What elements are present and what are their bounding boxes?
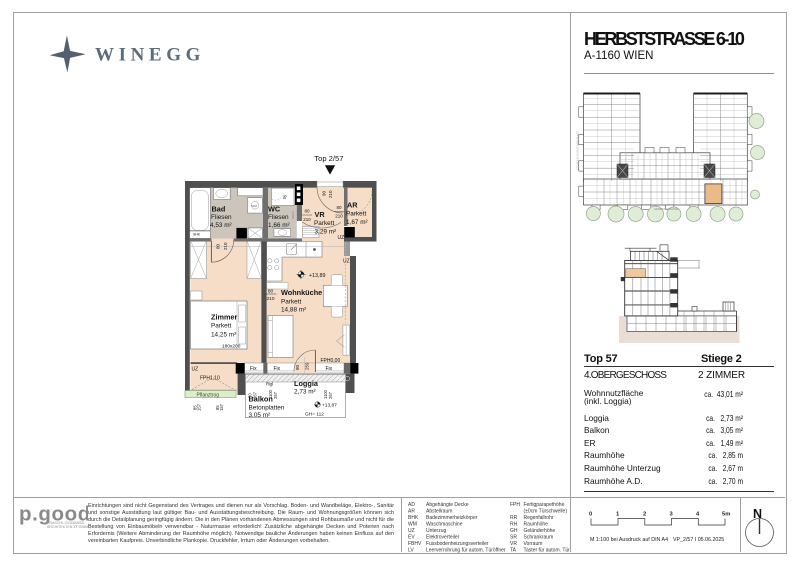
svg-text:Zimmer: Zimmer [211, 313, 238, 322]
svg-text:Wohnküche: Wohnküche [281, 288, 322, 297]
svg-text:Parkett: Parkett [211, 323, 231, 330]
svg-text:Parkett: Parkett [314, 220, 334, 227]
svg-text:WC: WC [268, 205, 281, 214]
svg-text:Fix: Fix [274, 366, 281, 372]
svg-text:Vorraum: Vorraum [524, 541, 543, 547]
svg-text:Betonplatten: Betonplatten [249, 405, 285, 412]
svg-text:80: 80 [216, 243, 221, 249]
svg-text:UZ: UZ [192, 367, 199, 373]
svg-text:SR: SR [510, 535, 517, 541]
svg-text:RR: RR [337, 376, 344, 381]
svg-text:80: 80 [304, 209, 310, 214]
svg-text:UZ: UZ [408, 528, 415, 534]
svg-text:FPH: FPH [510, 502, 520, 508]
svg-text:VP_2/57 I 05.06.2025: VP_2/57 I 05.06.2025 [673, 537, 724, 543]
svg-text:HERBSTSTRASSE: HERBSTSTRASSE [654, 207, 679, 211]
svg-text:3,29 m²: 3,29 m² [315, 229, 337, 236]
svg-text:Regenfallrohr: Regenfallrohr [524, 515, 554, 521]
svg-text:1: 1 [616, 512, 620, 518]
svg-text:Abstellraum: Abstellraum [426, 509, 452, 515]
svg-text:SHK: SHK [193, 233, 201, 237]
svg-text:LV: LV [408, 548, 414, 554]
svg-text:Pflanztrog: Pflanztrog [197, 392, 220, 398]
svg-text:267: 267 [328, 391, 333, 399]
svg-text:157: 157 [197, 403, 202, 411]
svg-text:5m: 5m [722, 512, 730, 518]
svg-text:210: 210 [335, 214, 343, 219]
svg-text:1,66 m²: 1,66 m² [268, 222, 290, 229]
svg-text:259: 259 [305, 362, 310, 370]
svg-text:Fix: Fix [326, 366, 333, 372]
svg-text:Top 2/57: Top 2/57 [314, 154, 343, 163]
svg-text:AR: AR [408, 509, 415, 515]
svg-text:Fertigparapethöhe: Fertigparapethöhe [524, 502, 565, 508]
svg-text:210: 210 [223, 242, 228, 250]
svg-text:2,73 m²: 2,73 m² [294, 389, 316, 396]
svg-text:267: 267 [253, 391, 258, 399]
svg-text:Loggia: Loggia [294, 379, 319, 388]
svg-text:2: 2 [643, 512, 646, 518]
svg-text:RH: RH [510, 522, 518, 528]
svg-text:AD: AD [408, 502, 415, 508]
svg-text:GH: GH [510, 528, 518, 534]
svg-text:43x2,5: 43x2,5 [291, 211, 295, 219]
svg-text:157: 157 [219, 403, 224, 411]
svg-text:TA: TA [510, 548, 517, 554]
svg-text:0: 0 [589, 512, 592, 518]
svg-text:Parkett: Parkett [346, 211, 366, 218]
svg-text:Elektroverteiler: Elektroverteiler [426, 535, 460, 541]
svg-text:Abgehängte Decke: Abgehängte Decke [426, 502, 469, 508]
svg-text:210: 210 [266, 296, 274, 302]
svg-text:Fliesen: Fliesen [211, 214, 232, 221]
svg-text:4: 4 [696, 512, 700, 518]
svg-text:AR: AR [347, 201, 358, 210]
svg-text:LEOPOLD-KUNSCHAK-PLATZ: LEOPOLD-KUNSCHAK-PLATZ [576, 131, 580, 170]
svg-text:Taster für autom. Türöffner: Taster für autom. Türöffner [524, 548, 571, 554]
svg-text:Bad: Bad [212, 205, 226, 214]
svg-text:90: 90 [322, 190, 327, 196]
svg-text:+13,89: +13,89 [309, 273, 326, 279]
svg-text:267: 267 [273, 391, 278, 399]
svg-text:80: 80 [336, 205, 342, 210]
svg-text:14,88 m²: 14,88 m² [281, 307, 306, 314]
svg-text:FPH1,10: FPH1,10 [200, 376, 220, 382]
svg-text:Waschmaschine: Waschmaschine [426, 522, 463, 528]
svg-text:BHK: BHK [408, 515, 419, 521]
svg-text:+13,87: +13,87 [322, 403, 337, 409]
svg-text:14,25 m²: 14,25 m² [211, 332, 236, 339]
svg-text:180x200: 180x200 [222, 344, 241, 350]
svg-text:210: 210 [328, 190, 333, 198]
svg-text:1,67 m²: 1,67 m² [346, 219, 368, 226]
svg-text:Parkett: Parkett [281, 299, 301, 306]
svg-text:WM: WM [408, 522, 417, 528]
svg-text:Fix: Fix [250, 366, 257, 372]
svg-text:WM: WM [252, 204, 258, 208]
svg-text:Fussbodenheizungsverteiler: Fussbodenheizungsverteiler [426, 541, 489, 547]
svg-text:Geländerhöhe: Geländerhöhe [524, 528, 556, 534]
svg-text:80: 80 [295, 364, 300, 370]
svg-text:UZ: UZ [338, 235, 345, 241]
svg-text:RR: RR [510, 515, 518, 521]
svg-text:EV: EV [408, 535, 415, 541]
svg-text:UZ: UZ [343, 259, 350, 265]
svg-text:Fliesen: Fliesen [268, 214, 289, 221]
svg-text:FPH0,00: FPH0,00 [321, 358, 341, 364]
svg-text:80: 80 [268, 289, 274, 295]
svg-text:(±0cm Türschwelle): (±0cm Türschwelle) [524, 509, 568, 515]
svg-text:M 1:100 bei Ausdruck auf DIN A: M 1:100 bei Ausdruck auf DIN A4 [590, 537, 668, 543]
svg-text:ARCHITEKTEN ZT GMBH: ARCHITEKTEN ZT GMBH [47, 525, 88, 529]
svg-text:Leerverrohrung für autom. Türö: Leerverrohrung für autom. Türöffner [426, 548, 506, 554]
svg-text:FBHV: FBHV [408, 541, 422, 547]
svg-text:Badezimmerheizkörper: Badezimmerheizkörper [426, 515, 478, 521]
svg-text:3: 3 [670, 512, 674, 518]
svg-text:210: 210 [303, 217, 311, 222]
svg-text:4,53 m²: 4,53 m² [210, 222, 232, 229]
svg-text:Unterzug: Unterzug [426, 528, 447, 534]
svg-text:Schrankraum: Schrankraum [524, 535, 554, 541]
svg-text:Raumhöhe: Raumhöhe [524, 522, 549, 528]
svg-text:VR: VR [510, 541, 517, 547]
svg-text:WINEGG: WINEGG [95, 45, 205, 66]
svg-text:GH= 112: GH= 112 [305, 412, 324, 418]
svg-text:VR: VR [315, 210, 326, 219]
svg-text:3,05 m²: 3,05 m² [249, 412, 271, 419]
svg-text:Rigl: Rigl [266, 382, 273, 387]
